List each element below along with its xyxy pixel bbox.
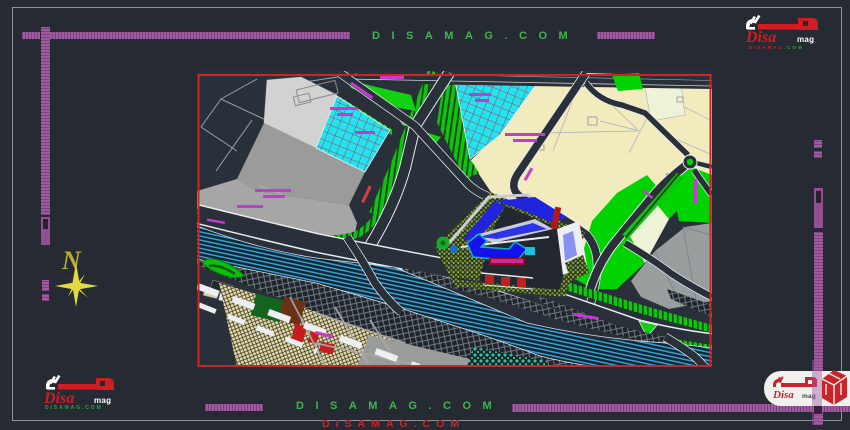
svg-text:mag: mag [797,35,814,44]
svg-text:Disa: Disa [745,29,776,46]
svg-text:N: N [61,246,82,275]
svg-text:mag: mag [94,396,111,405]
svg-text:Disa: Disa [772,389,794,401]
